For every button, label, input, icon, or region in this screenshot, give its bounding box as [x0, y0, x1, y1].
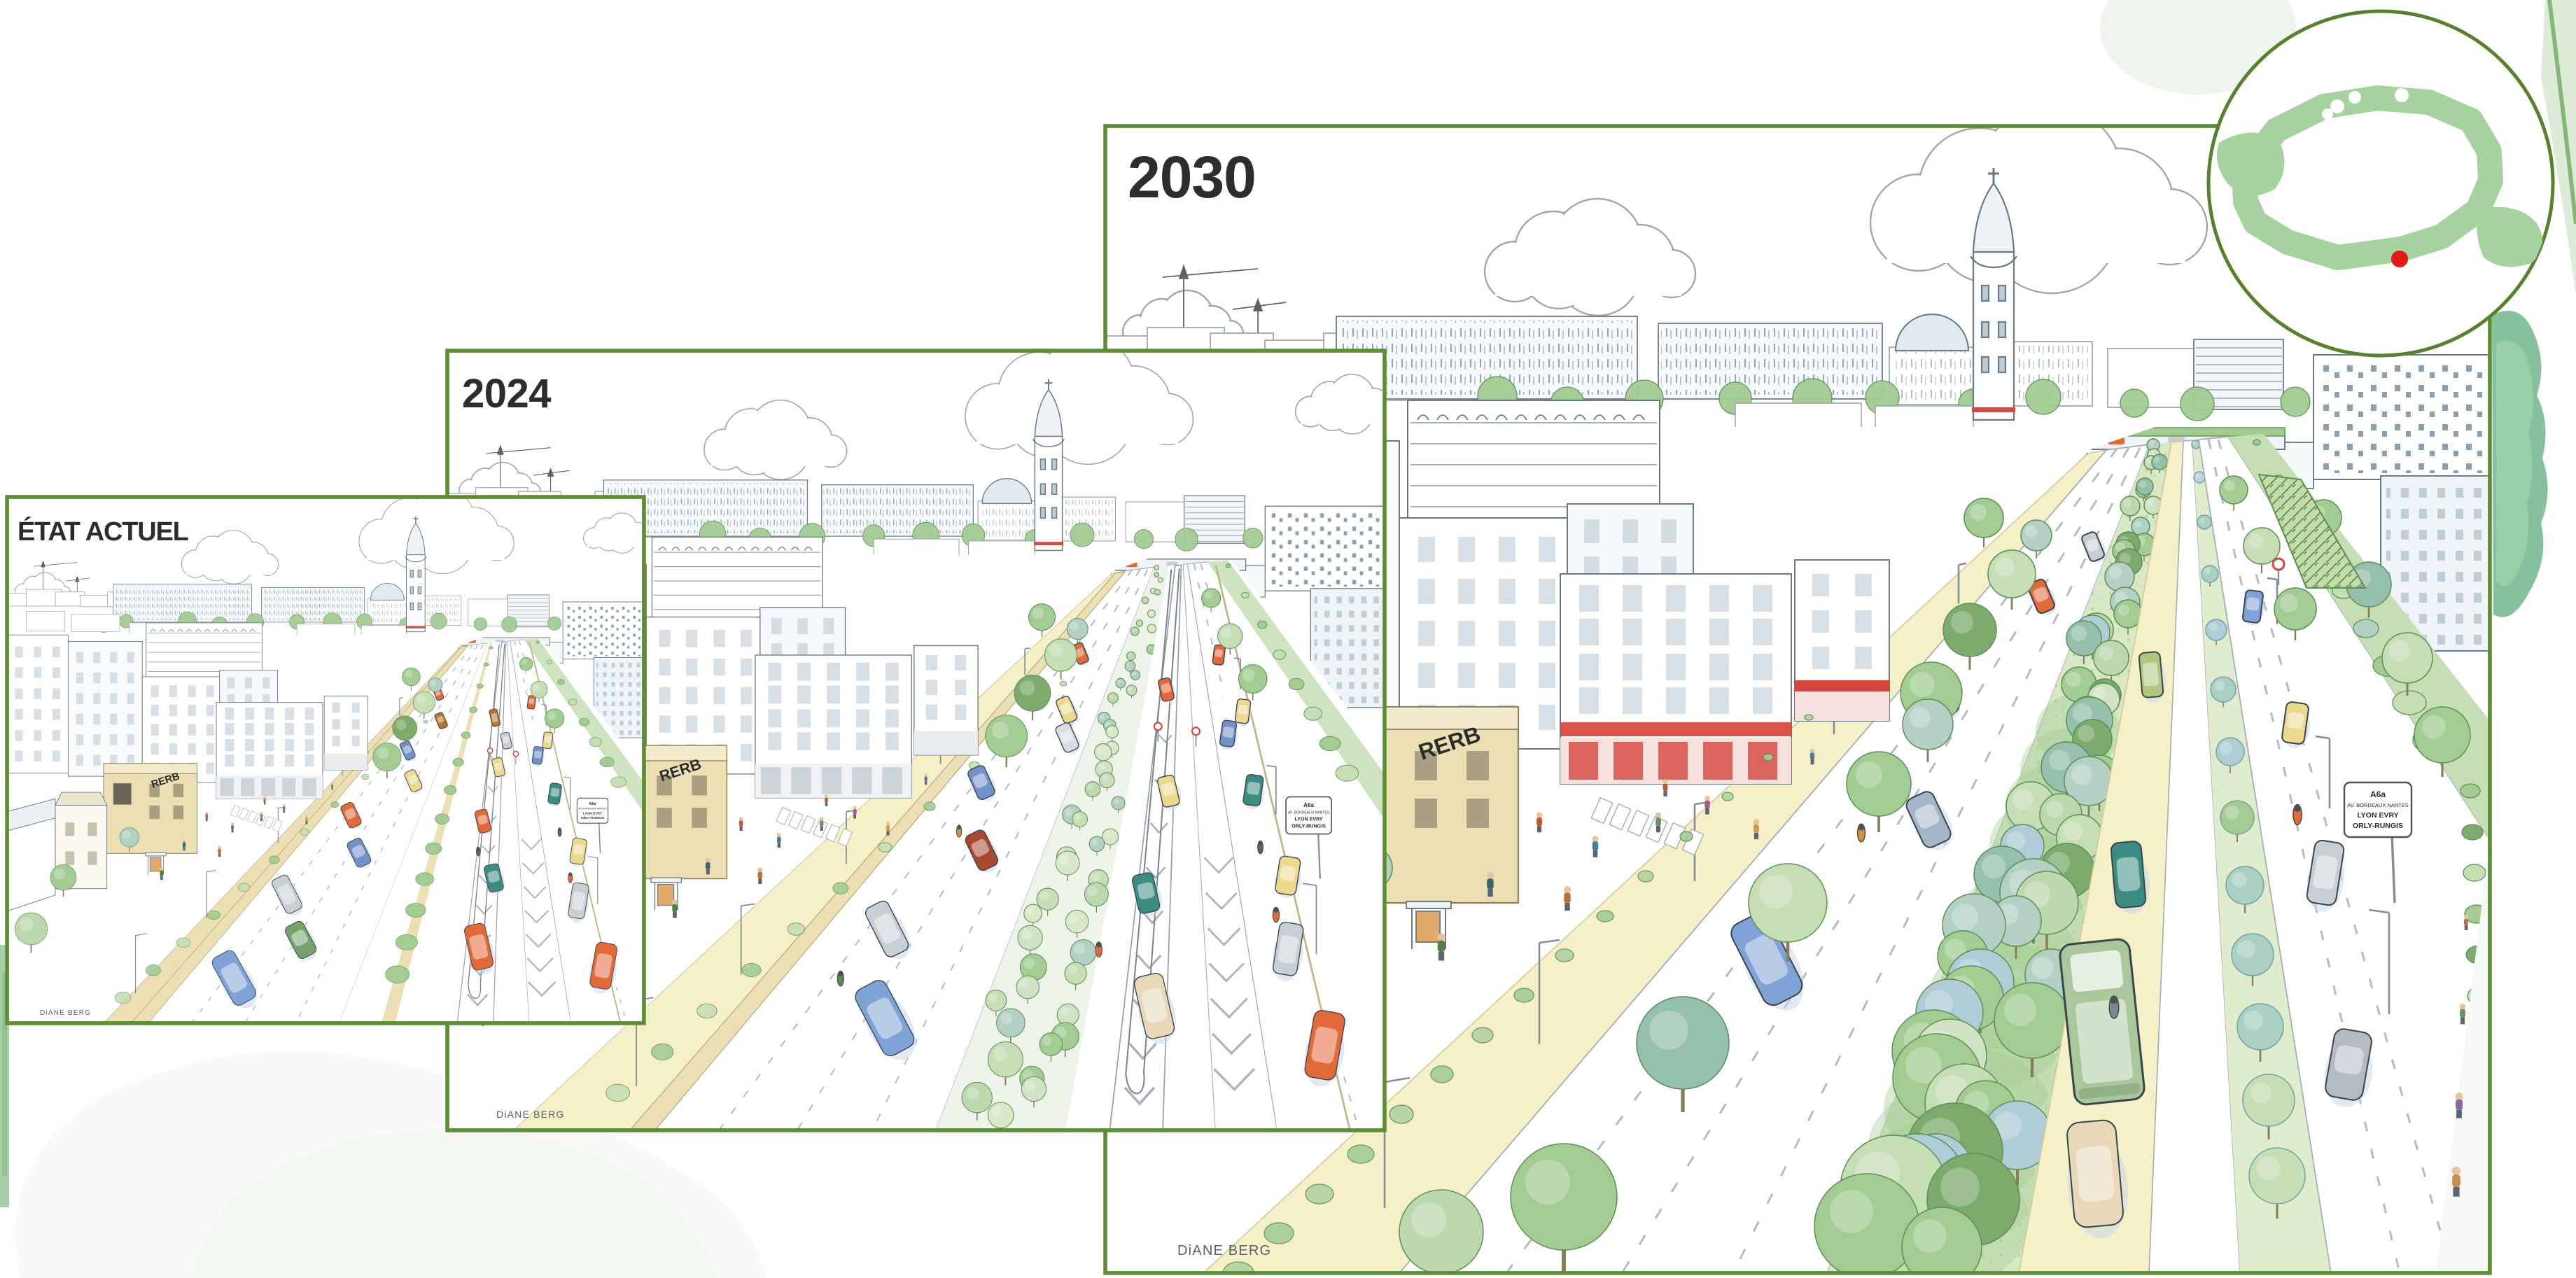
- svg-text:AV. BORDEAUX NANTES: AV. BORDEAUX NANTES: [1288, 810, 1330, 815]
- svg-text:AV. BORDEAUX NANTES: AV. BORDEAUX NANTES: [578, 807, 607, 810]
- svg-text:DiANE BERG: DiANE BERG: [1177, 1243, 1271, 1258]
- svg-text:ORLY-RUNGIS: ORLY-RUNGIS: [2353, 822, 2403, 830]
- svg-text:DiANE BERG: DiANE BERG: [496, 1109, 565, 1120]
- svg-text:A6a: A6a: [1303, 802, 1314, 808]
- svg-text:LYON EVRY: LYON EVRY: [1295, 817, 1323, 822]
- svg-text:2030: 2030: [1128, 144, 1256, 210]
- svg-text:A6a: A6a: [2370, 789, 2386, 799]
- svg-text:ORLY-RUNGIS: ORLY-RUNGIS: [1291, 824, 1326, 829]
- svg-text:ORLY-RUNGIS: ORLY-RUNGIS: [581, 816, 605, 820]
- svg-text:DiANE BERG: DiANE BERG: [40, 1009, 91, 1017]
- svg-text:LYON EVRY: LYON EVRY: [2357, 811, 2398, 820]
- svg-text:LYON EVRY: LYON EVRY: [583, 811, 603, 815]
- svg-text:A6a: A6a: [589, 802, 596, 806]
- svg-text:AV. BORDEAUX NANTES: AV. BORDEAUX NANTES: [2347, 802, 2409, 808]
- svg-text:ÉTAT ACTUEL: ÉTAT ACTUEL: [17, 516, 189, 547]
- svg-text:2024: 2024: [462, 371, 551, 416]
